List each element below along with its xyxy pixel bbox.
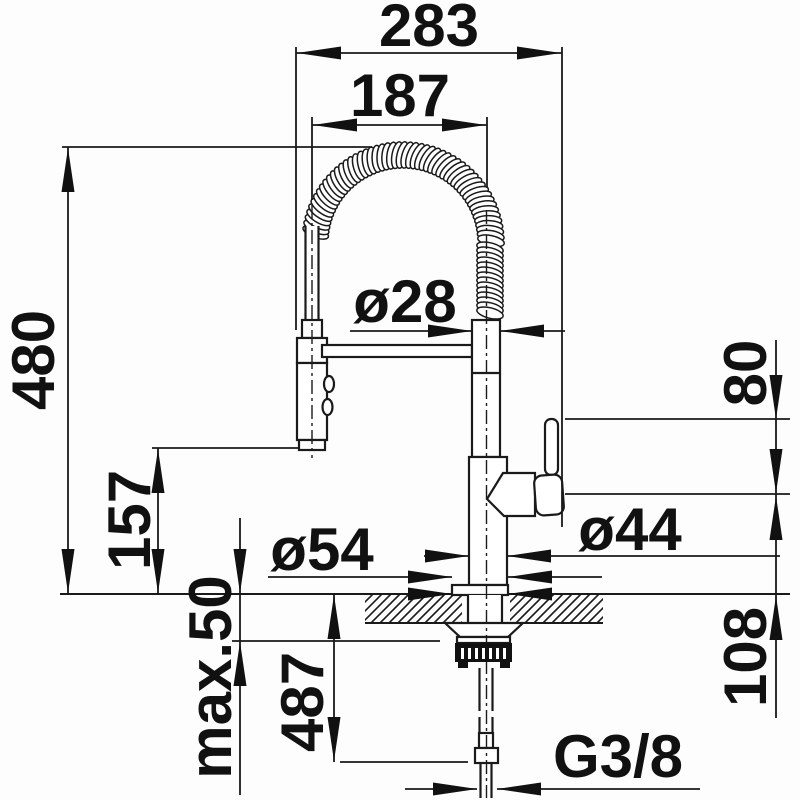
dim-clearance-label: 157	[96, 470, 163, 570]
handle-housing	[534, 474, 565, 516]
technical-drawing-canvas: 283 187 ø28 480 157 max.50 487 80 108 ø4…	[0, 0, 800, 800]
mounting-plate	[445, 623, 523, 637]
faucet-technical-drawing: 283 187 ø28 480 157 max.50 487 80 108 ø4…	[0, 0, 800, 800]
dim-base-height-label: 108	[712, 607, 779, 707]
spray-button-top	[324, 376, 334, 392]
dim-spout-reach-label: 187	[350, 62, 450, 129]
dim-hose-length-label: 487	[269, 652, 336, 752]
lever-handle	[545, 419, 558, 475]
dim-thread-label: G3/8	[553, 723, 683, 790]
nut-foot-right	[500, 662, 510, 668]
dim-lever-height-label: 80	[712, 340, 779, 407]
support-bar	[322, 345, 472, 357]
dim-base-diameter-label: ø54	[270, 516, 374, 583]
counter-shank	[468, 595, 502, 623]
dim-width-total-label: 283	[379, 0, 479, 59]
dim-max-counter-label: max.50	[177, 575, 244, 779]
base-flange	[452, 585, 508, 595]
mounting-washer	[457, 637, 510, 643]
dim-body-diameter-label: ø44	[578, 496, 682, 563]
dim-spring-diameter-label: ø28	[353, 268, 456, 335]
nut-foot-left	[458, 662, 468, 668]
dim-height-label: 480	[0, 310, 67, 410]
spray-button-bottom	[323, 399, 333, 415]
